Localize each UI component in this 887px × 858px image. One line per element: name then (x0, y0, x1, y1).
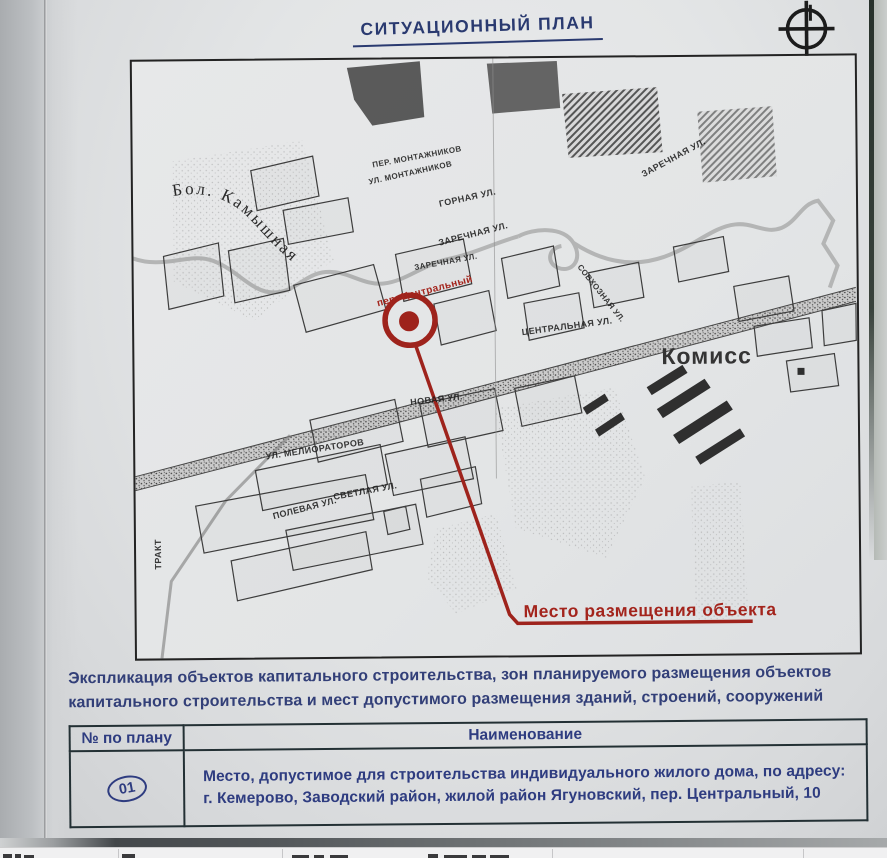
taskbar-sliver[interactable] (0, 847, 887, 858)
document: СИТУАЦИОННЫЙ ПЛАН (0, 0, 887, 858)
situational-map: Бол. Камышная Комисс Место размещения об… (130, 53, 862, 660)
photo-bottom-edge (0, 838, 887, 847)
separator (803, 849, 804, 858)
separator (118, 849, 119, 858)
explication-table: № по плану Наименование 01 Место, допуст… (69, 718, 869, 828)
object-description-cell: Место, допустимое для строительства инди… (184, 745, 868, 827)
map-drawing: Бол. Камышная Комисс Место размещения об… (132, 55, 860, 658)
taskbar-item[interactable] (3, 854, 12, 858)
explication-text: Экспликация объектов капитального строит… (68, 660, 874, 715)
taskbar-item[interactable] (15, 854, 21, 858)
taskbar-item[interactable] (122, 854, 135, 858)
separator (552, 849, 553, 858)
dense-buildings (347, 58, 777, 186)
callout-text: Место размещения объекта (524, 599, 777, 621)
col-header-plan-no: № по плану (70, 725, 184, 751)
photo-of-situational-plan: СИТУАЦИОННЫЙ ПЛАН (0, 0, 887, 858)
table-row: 01 Место, допустимое для строительства и… (70, 745, 868, 828)
plan-number-badge: 01 (105, 773, 149, 806)
plan-number-cell: 01 (70, 751, 185, 828)
separator (282, 849, 283, 858)
taskbar-item[interactable] (428, 854, 438, 858)
district-name: Комисс (661, 342, 752, 369)
page-title: СИТУАЦИОННЫЙ ПЛАН (352, 12, 603, 47)
